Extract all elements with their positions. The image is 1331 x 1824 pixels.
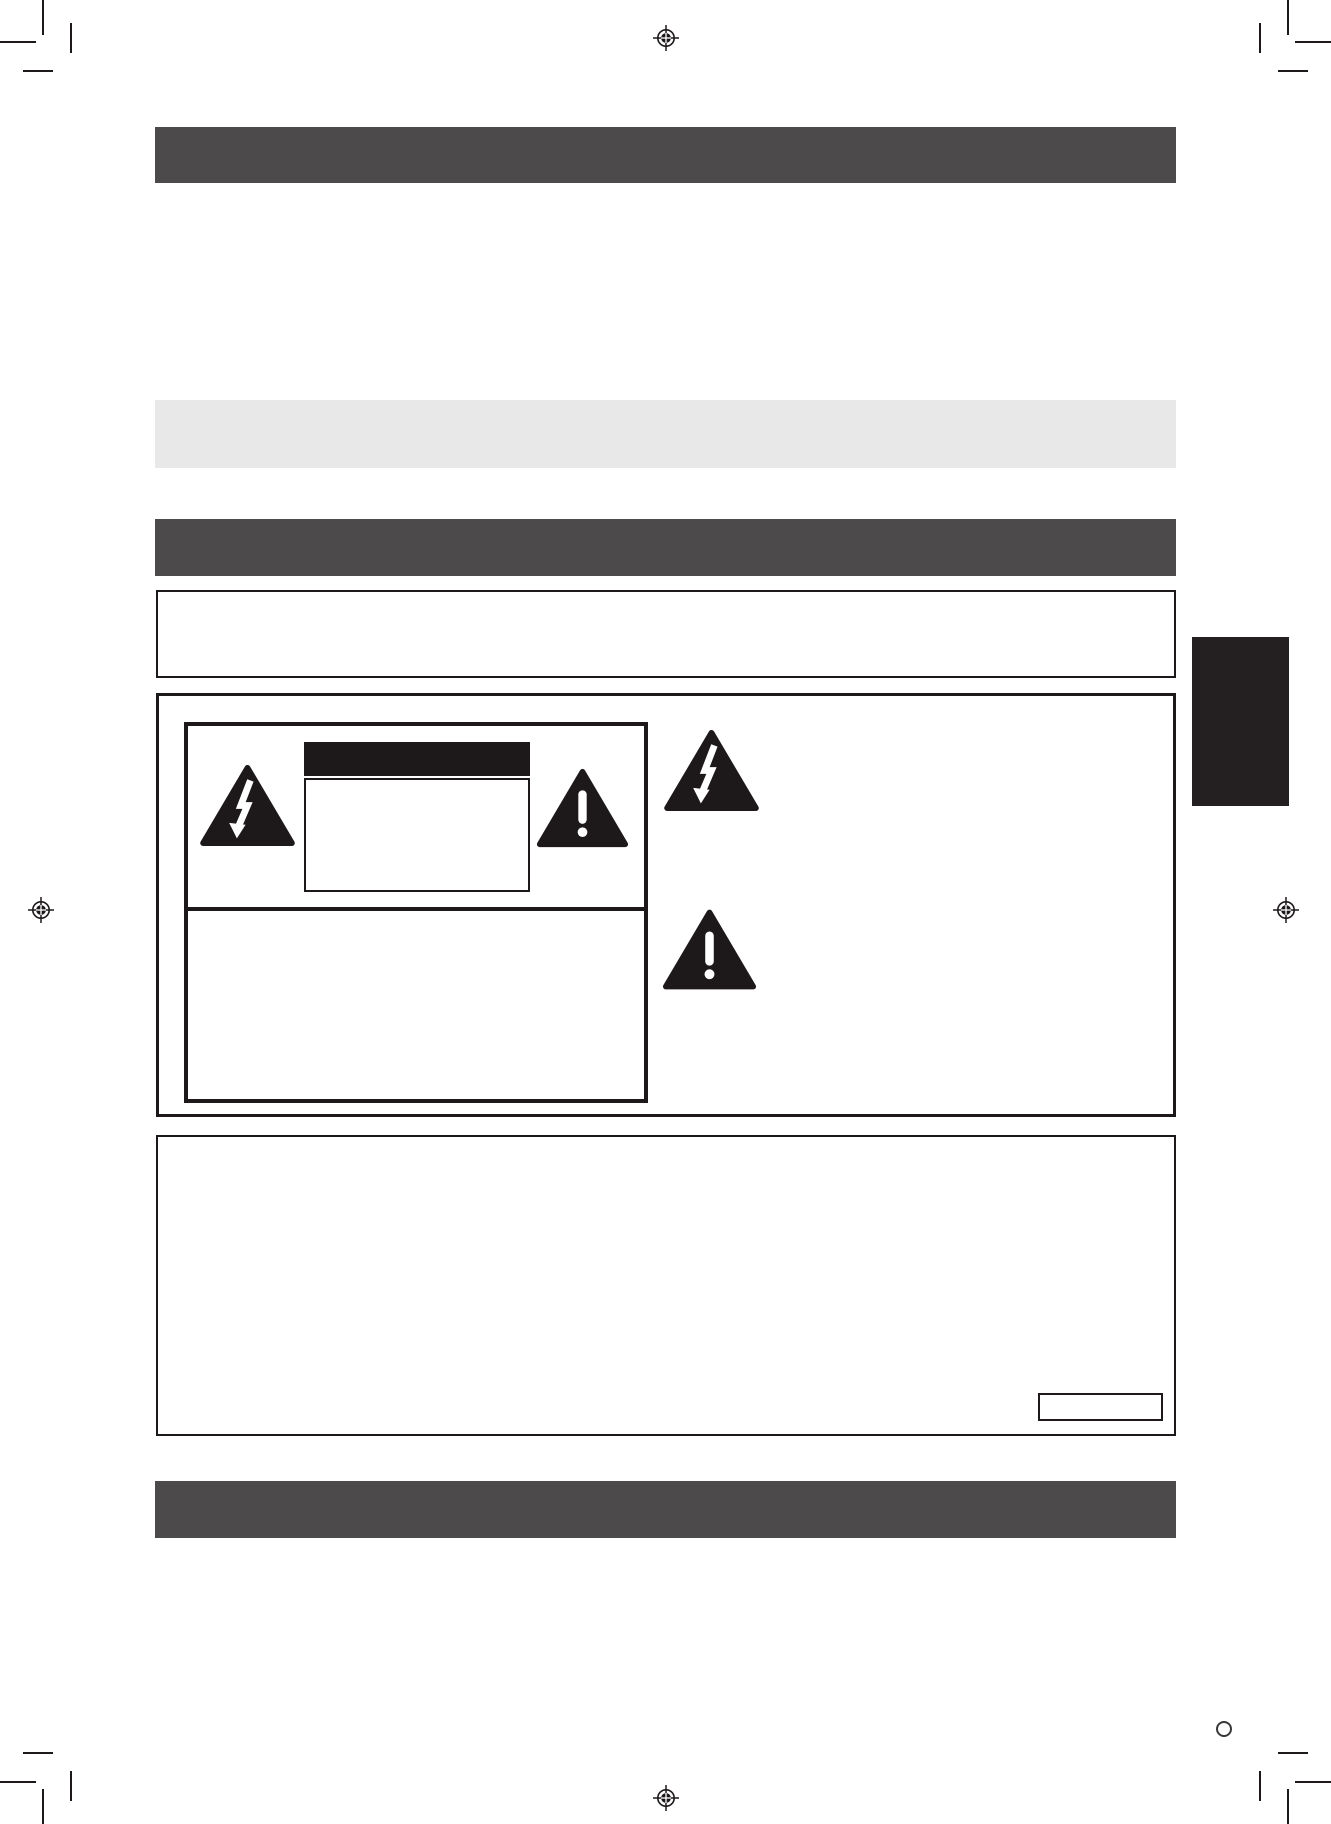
crop-mark-line <box>23 1752 53 1754</box>
subsection-bar <box>155 400 1176 468</box>
registration-mark-left-icon <box>27 896 55 924</box>
footnote-box <box>1038 1393 1163 1421</box>
crop-mark-line <box>0 1781 36 1783</box>
notice-box <box>156 590 1176 678</box>
registration-mark-top-icon <box>652 24 680 52</box>
page-edge-tab <box>1192 637 1289 806</box>
crop-mark-line <box>1278 1752 1308 1754</box>
crop-mark-line <box>1287 1789 1289 1824</box>
info-box <box>156 1135 1176 1436</box>
alert-warning-icon <box>662 908 757 991</box>
electric-shock-warning-icon <box>663 729 760 812</box>
section-header-bar-bottom <box>155 1481 1176 1538</box>
alert-warning-icon <box>535 768 630 848</box>
crop-mark-line <box>0 41 36 43</box>
crop-mark-line <box>1287 0 1289 35</box>
crop-mark-line <box>23 70 53 72</box>
crop-mark-line <box>70 1771 72 1801</box>
registration-mark-bottom-icon <box>652 1784 680 1812</box>
crop-mark-line <box>1259 1771 1261 1801</box>
section-header-bar-top <box>155 127 1176 183</box>
crop-mark-line <box>70 23 72 53</box>
crop-mark-line <box>1259 23 1261 53</box>
crop-mark-line <box>42 1789 44 1824</box>
manual-page <box>0 0 1331 1824</box>
page-number-circle <box>1216 1721 1232 1737</box>
registration-mark-right-icon <box>1272 896 1300 924</box>
caution-text-box <box>304 778 530 892</box>
caution-title-bar <box>304 742 530 776</box>
crop-mark-line <box>42 0 44 35</box>
caution-label-divider <box>188 907 644 911</box>
crop-mark-line <box>1295 41 1331 43</box>
section-header-bar-middle <box>155 519 1176 576</box>
crop-mark-line <box>1278 70 1308 72</box>
electric-shock-warning-icon <box>199 764 296 847</box>
crop-mark-line <box>1295 1781 1331 1783</box>
